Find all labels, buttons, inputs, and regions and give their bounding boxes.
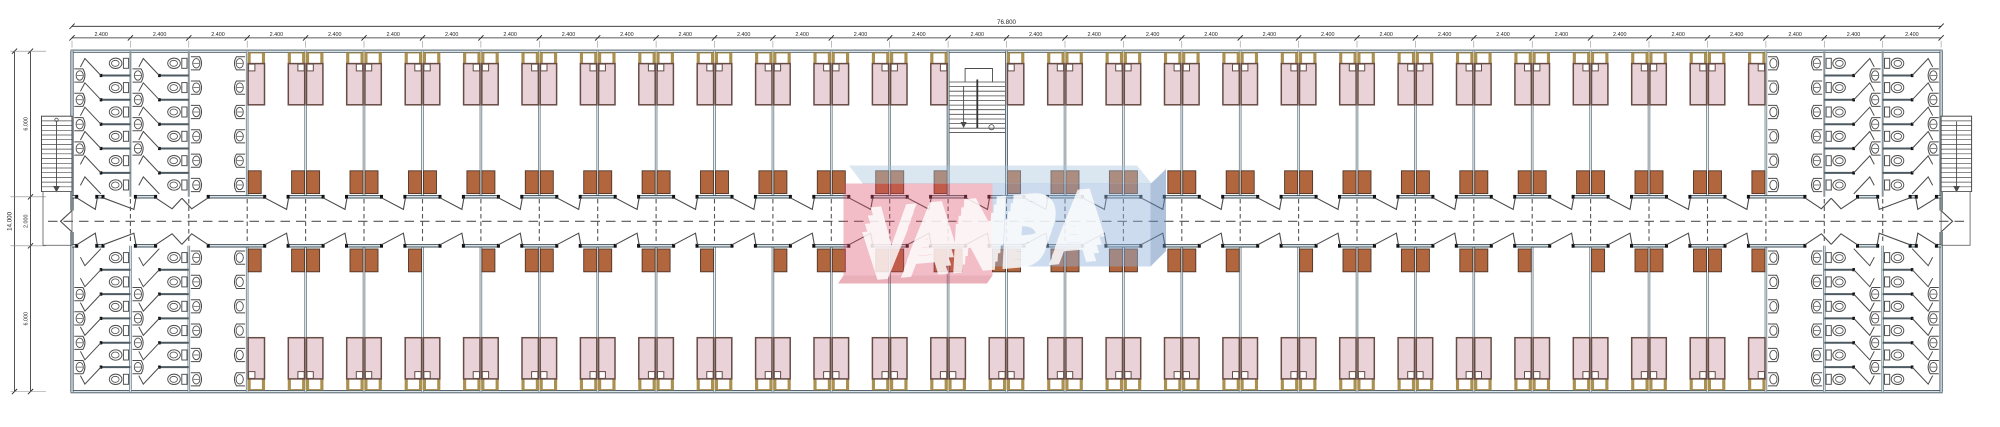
svg-text:2.400: 2.400: [795, 32, 809, 38]
svg-text:2.400: 2.400: [562, 32, 576, 38]
svg-text:2.400: 2.400: [1555, 32, 1569, 38]
svg-text:2.400: 2.400: [153, 32, 167, 38]
svg-text:2.400: 2.400: [1204, 32, 1218, 38]
svg-text:2.400: 2.400: [1847, 32, 1861, 38]
svg-text:2.400: 2.400: [211, 32, 225, 38]
svg-text:2.400: 2.400: [1029, 32, 1043, 38]
svg-text:2.400: 2.400: [971, 32, 985, 38]
svg-text:14.000: 14.000: [7, 211, 14, 230]
svg-text:2.400: 2.400: [620, 32, 634, 38]
svg-text:2.400: 2.400: [679, 32, 693, 38]
svg-text:2.400: 2.400: [737, 32, 751, 38]
svg-text:2.400: 2.400: [445, 32, 459, 38]
svg-text:2.400: 2.400: [270, 32, 284, 38]
svg-text:6.000: 6.000: [24, 117, 30, 130]
svg-text:2.400: 2.400: [1087, 32, 1101, 38]
svg-text:2.400: 2.400: [1788, 32, 1802, 38]
svg-text:2.400: 2.400: [1730, 32, 1744, 38]
svg-text:2.400: 2.400: [386, 32, 400, 38]
svg-text:2.400: 2.400: [1146, 32, 1160, 38]
svg-text:2.400: 2.400: [328, 32, 342, 38]
svg-text:2.400: 2.400: [1379, 32, 1393, 38]
svg-text:2.400: 2.400: [94, 32, 108, 38]
svg-text:2.400: 2.400: [1321, 32, 1335, 38]
svg-text:2.400: 2.400: [1438, 32, 1452, 38]
svg-text:76.800: 76.800: [997, 19, 1016, 26]
svg-text:2.000: 2.000: [24, 214, 30, 228]
svg-text:2.400: 2.400: [1496, 32, 1510, 38]
svg-text:2.400: 2.400: [854, 32, 868, 38]
svg-text:2.400: 2.400: [1905, 32, 1919, 38]
svg-text:2.400: 2.400: [1671, 32, 1685, 38]
svg-text:2.400: 2.400: [912, 32, 926, 38]
svg-text:2.400: 2.400: [503, 32, 517, 38]
svg-text:2.400: 2.400: [1263, 32, 1277, 38]
svg-text:6.000: 6.000: [24, 312, 30, 326]
svg-text:2.400: 2.400: [1613, 32, 1627, 38]
